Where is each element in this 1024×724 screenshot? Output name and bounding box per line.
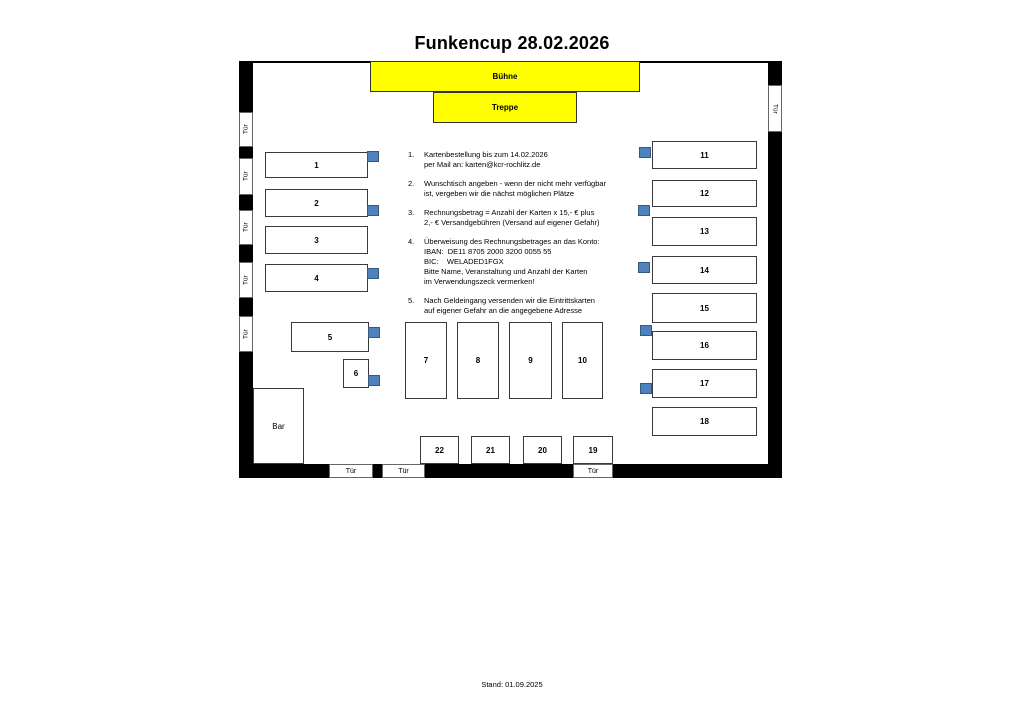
table-17: 17 (652, 369, 757, 398)
page: { "page": { "title": "Funkencup 28.02.20… (0, 0, 1024, 724)
table-5: 5 (291, 322, 369, 352)
seat-marker (367, 268, 379, 279)
table-16: 16 (652, 331, 757, 360)
table-9: 9 (509, 322, 552, 399)
instruction-text: Wunschtisch angeben - wenn der nicht meh… (424, 179, 653, 199)
wall-bottom (239, 464, 782, 478)
seat-marker (367, 205, 379, 216)
table-2: 2 (265, 189, 368, 217)
seat-marker (368, 375, 380, 386)
table-12: 12 (652, 180, 757, 207)
table-13: 13 (652, 217, 757, 246)
instruction-item: 5. Nach Geldeingang versenden wir die Ei… (408, 296, 653, 316)
instruction-number: 1. (408, 150, 424, 170)
table-1: 1 (265, 152, 368, 178)
door-left-2: Tür (239, 158, 253, 195)
seat-marker (368, 327, 380, 338)
instructions-list: 1. Kartenbestellung bis zum 14.02.2026 p… (408, 150, 653, 325)
footer-date: Stand: 01.09.2025 (0, 680, 1024, 689)
table-15: 15 (652, 293, 757, 323)
instruction-text: Überweisung des Rechnungsbetrages an das… (424, 237, 653, 287)
instruction-number: 4. (408, 237, 424, 287)
table-3: 3 (265, 226, 368, 254)
floor-plan: Tür Tür Tür Tür Tür Tür Tür Tür Tür Bühn… (239, 61, 782, 478)
door-bottom-3: Tür (573, 464, 613, 478)
door-bottom-1: Tür (329, 464, 373, 478)
door-bottom-2: Tür (382, 464, 425, 478)
table-14: 14 (652, 256, 757, 284)
instruction-number: 2. (408, 179, 424, 199)
instruction-text: Kartenbestellung bis zum 14.02.2026 per … (424, 150, 653, 170)
table-7: 7 (405, 322, 447, 399)
instruction-number: 5. (408, 296, 424, 316)
table-8: 8 (457, 322, 499, 399)
table-21: 21 (471, 436, 510, 464)
table-19: 19 (573, 436, 613, 464)
table-10: 10 (562, 322, 603, 399)
instruction-number: 3. (408, 208, 424, 228)
table-22: 22 (420, 436, 459, 464)
instruction-text: Rechnungsbetrag = Anzahl der Karten x 15… (424, 208, 653, 228)
table-11: 11 (652, 141, 757, 169)
instruction-text: Nach Geldeingang versenden wir die Eintr… (424, 296, 653, 316)
instruction-item: 4. Überweisung des Rechnungsbetrages an … (408, 237, 653, 287)
seat-marker (367, 151, 379, 162)
door-right: Tür (768, 85, 782, 132)
door-left-3: Tür (239, 210, 253, 245)
bar-area: Bar (253, 388, 304, 464)
instruction-item: 3. Rechnungsbetrag = Anzahl der Karten x… (408, 208, 653, 228)
stairs: Treppe (433, 92, 577, 123)
table-18: 18 (652, 407, 757, 436)
instruction-item: 1. Kartenbestellung bis zum 14.02.2026 p… (408, 150, 653, 170)
table-6: 6 (343, 359, 369, 388)
instruction-item: 2. Wunschtisch angeben - wenn der nicht … (408, 179, 653, 199)
seat-marker (640, 325, 652, 336)
door-left-5: Tür (239, 316, 253, 352)
door-left-1: Tür (239, 112, 253, 147)
table-4: 4 (265, 264, 368, 292)
page-title: Funkencup 28.02.2026 (0, 33, 1024, 54)
door-left-4: Tür (239, 262, 253, 298)
table-20: 20 (523, 436, 562, 464)
seat-marker (640, 383, 652, 394)
stage: Bühne (370, 61, 640, 92)
